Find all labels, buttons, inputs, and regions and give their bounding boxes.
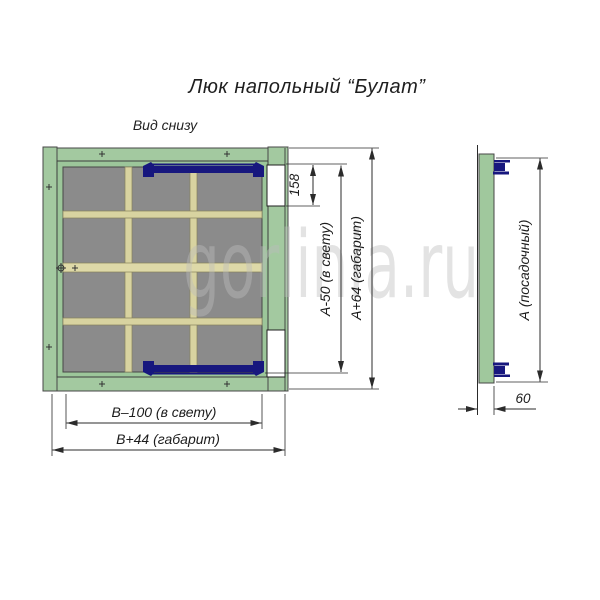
- dim-label-height-overall: А+64 (габарит): [348, 216, 364, 321]
- hinge-plate-bottom: [267, 330, 285, 377]
- dim-label-width-clear: В–100 (в свету): [112, 404, 217, 420]
- drawing-page: gorlinia.ru 158 А-50 (в свету) А+64 (габ…: [0, 0, 600, 600]
- view-label: Вид снизу: [133, 117, 198, 133]
- hinge-plate-top: [267, 165, 285, 206]
- technical-drawing: gorlinia.ru 158 А-50 (в свету) А+64 (габ…: [0, 0, 600, 600]
- frame-strip-top: [57, 148, 268, 161]
- dim-label-depth: 60: [515, 391, 531, 406]
- side-frame-bar: [479, 154, 494, 383]
- dim-label-height-clear: А-50 (в свету): [317, 222, 333, 317]
- frame-strip-bottom: [57, 377, 268, 391]
- page-title: Люк напольный “Булат”: [187, 76, 427, 98]
- dim-label-hinge-offset: 158: [287, 173, 302, 196]
- frame-strip-left: [43, 147, 57, 391]
- grid-rib-horizontal-3: [63, 318, 262, 325]
- side-latch-top: [493, 160, 510, 175]
- dim-label-seat-height: А (посадочный): [516, 220, 532, 322]
- side-view: [478, 145, 511, 415]
- side-latch-bottom: [493, 363, 510, 378]
- dim-label-width-overall: В+44 (габарит): [116, 431, 220, 447]
